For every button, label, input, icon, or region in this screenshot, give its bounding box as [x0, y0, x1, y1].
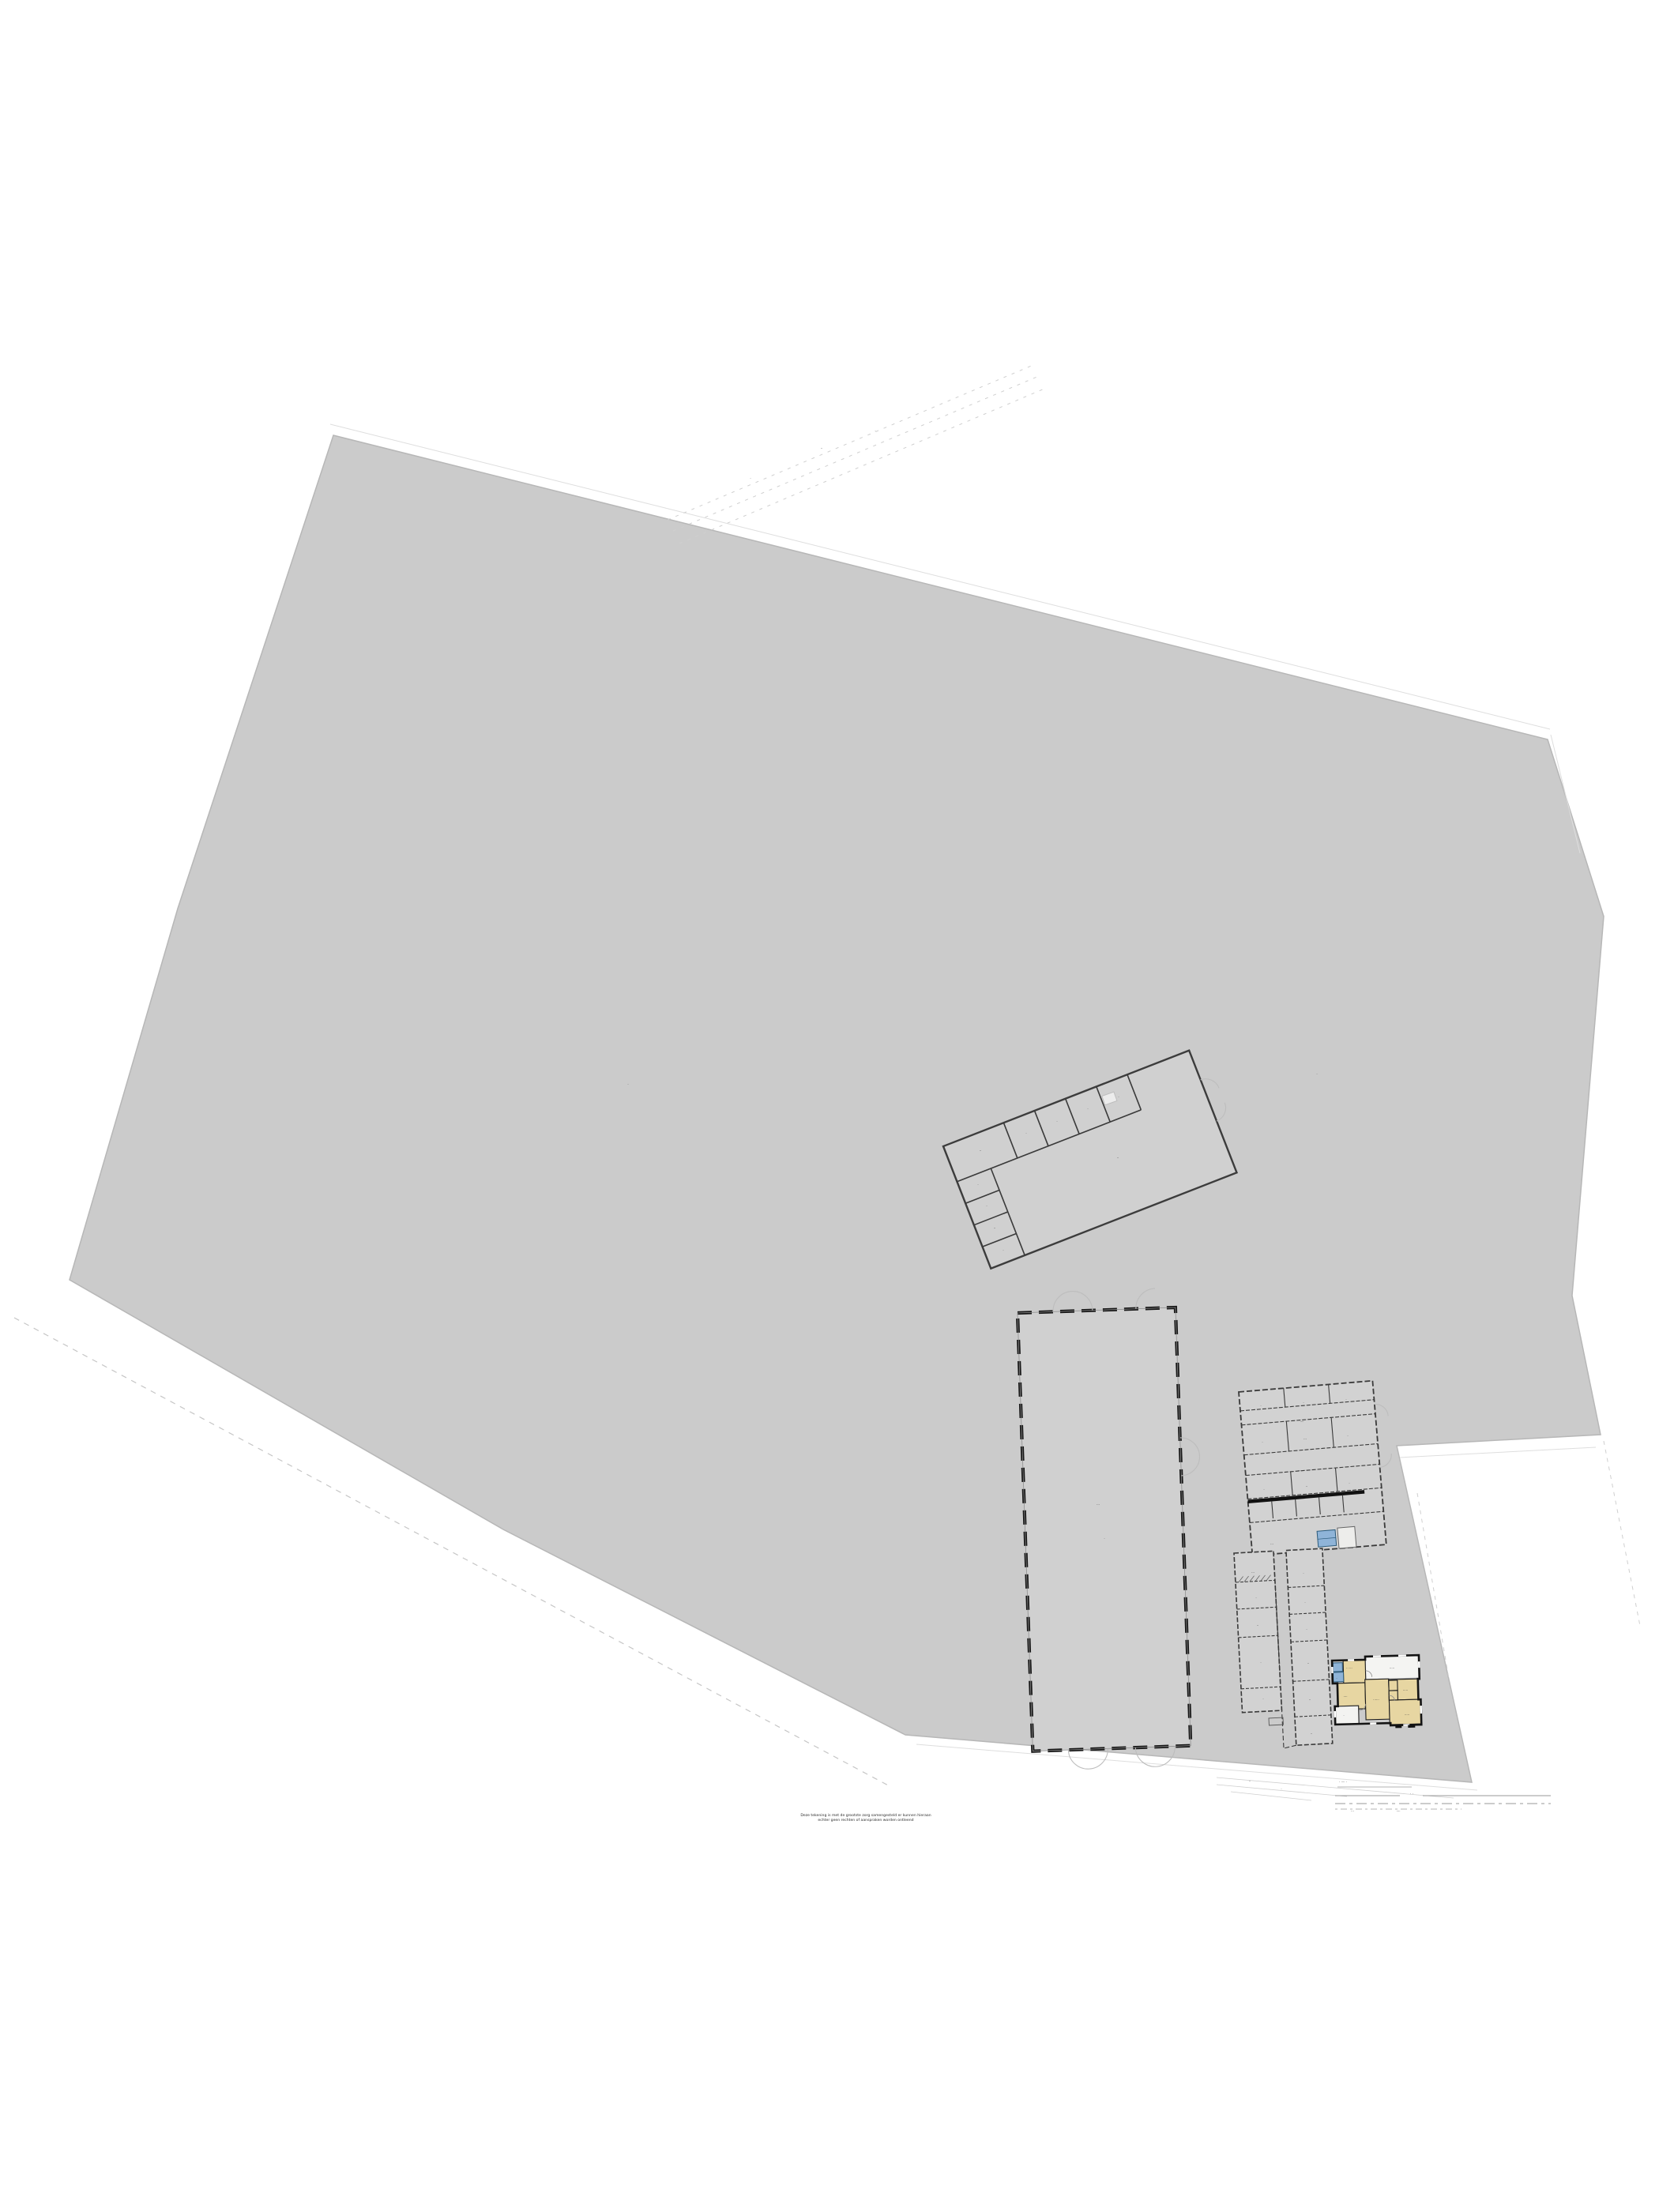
- micro-label: ·····: [1405, 1713, 1409, 1717]
- micro-label: ·: [1306, 1627, 1307, 1631]
- micro-label: ·: [1262, 1697, 1263, 1701]
- barn-outline: [1018, 1307, 1191, 1751]
- micro-label: ·: [750, 476, 750, 480]
- micro-label: ····: [1343, 1695, 1347, 1698]
- room: [1337, 1683, 1366, 1710]
- micro-label: ··: [1117, 1156, 1119, 1160]
- micro-label: ···: [1270, 1542, 1273, 1546]
- room: [1343, 1660, 1366, 1683]
- disclaimer-line2: echter geen rechten of aanspraken worden…: [818, 1818, 913, 1823]
- micro-label: ·: [1345, 1398, 1346, 1401]
- door-arc: [1068, 1749, 1089, 1770]
- closet: [1389, 1680, 1398, 1691]
- micro-label: · ···· ·: [1339, 1780, 1347, 1784]
- micro-label: ·: [1303, 1571, 1303, 1575]
- micro-label: ·: [1118, 1095, 1119, 1099]
- micro-label: ··: [1257, 1623, 1259, 1627]
- porch-step: [1395, 1725, 1401, 1729]
- micro-label: ·: [1316, 1072, 1317, 1076]
- micro-label: ··: [980, 1149, 982, 1153]
- farmhouse: [1332, 1655, 1421, 1729]
- micro-label: ·: [1087, 1107, 1088, 1111]
- micro-label: ··: [1249, 1779, 1251, 1783]
- micro-label: ·: [1336, 1676, 1337, 1680]
- micro-label: ·: [1104, 1537, 1104, 1540]
- micro-label: ·····: [1390, 1666, 1394, 1670]
- site-plan-canvas: · · ··· ···· Deze tekening is met de gro…: [0, 0, 1659, 2212]
- road-line-2: [673, 376, 1039, 531]
- micro-label: ··: [1309, 1698, 1311, 1702]
- small-white-room: [1337, 1526, 1356, 1548]
- road-line-1: [668, 365, 1033, 520]
- micro-label: ·: [1349, 1481, 1349, 1485]
- dimension-lines: [1217, 1777, 1454, 1800]
- micro-label: ·: [1303, 1401, 1303, 1405]
- micro-label: ··: [1306, 1484, 1308, 1488]
- micro-label: ·: [1304, 1601, 1305, 1604]
- micro-label: ·: [875, 429, 875, 433]
- building-stables-north: [1239, 1379, 1399, 1556]
- road-line-3: [679, 389, 1044, 544]
- bathroom: [1333, 1663, 1342, 1672]
- micro-label: ·: [1281, 1787, 1281, 1791]
- micro-label: ·····: [1403, 1688, 1408, 1692]
- micro-label: ··: [821, 446, 823, 450]
- boundary-right-lower-2: [1604, 1441, 1640, 1626]
- micro-label: ···: [1251, 1571, 1255, 1574]
- micro-label: ·· ···: [1346, 1666, 1352, 1670]
- scale-bar-label: · ·: [1410, 1792, 1413, 1796]
- micro-label: ··: [1307, 1661, 1310, 1665]
- scale-tick-label-left: ···: [1351, 1809, 1354, 1813]
- micro-label: ·: [986, 1204, 987, 1208]
- micro-label: ·: [1255, 1596, 1256, 1600]
- micro-label: ·: [977, 1183, 978, 1187]
- micro-label: ···: [1303, 1437, 1307, 1441]
- micro-label: ·: [627, 1082, 628, 1086]
- micro-label: ·: [1003, 1248, 1003, 1252]
- micro-label: ·: [1260, 1661, 1261, 1665]
- micro-label: ····: [1297, 1469, 1301, 1473]
- micro-label: ····: [1300, 1420, 1303, 1424]
- micro-label: ··: [1311, 1732, 1313, 1736]
- micro-label: ·: [1262, 1440, 1262, 1444]
- micro-label: ······: [1373, 1698, 1379, 1702]
- porch-step: [1408, 1725, 1415, 1728]
- parcel-polygon: [70, 435, 1604, 1782]
- site-plan-drawing: · · ··· ···· Deze tekening is met de gro…: [0, 0, 1659, 2212]
- toilet: [1333, 1672, 1343, 1682]
- white-room: [1335, 1706, 1360, 1725]
- micro-label: ···: [1097, 1503, 1100, 1507]
- micro-label: ·: [1347, 1434, 1348, 1438]
- micro-label: ·: [1260, 1404, 1261, 1408]
- micro-label: ·: [1263, 1488, 1264, 1492]
- micro-label: ··: [994, 1226, 996, 1230]
- disclaimer-line1: Deze tekening is met de grootste zorg sa…: [800, 1813, 931, 1818]
- parcel: [70, 435, 1604, 1790]
- micro-label: ·: [1343, 1714, 1344, 1717]
- micro-label: ·: [1056, 1119, 1057, 1123]
- boundary-step-offset: [1400, 1447, 1596, 1458]
- scale-tick-label-right: ····: [1396, 1809, 1400, 1813]
- micro-label: ·: [1025, 1131, 1026, 1135]
